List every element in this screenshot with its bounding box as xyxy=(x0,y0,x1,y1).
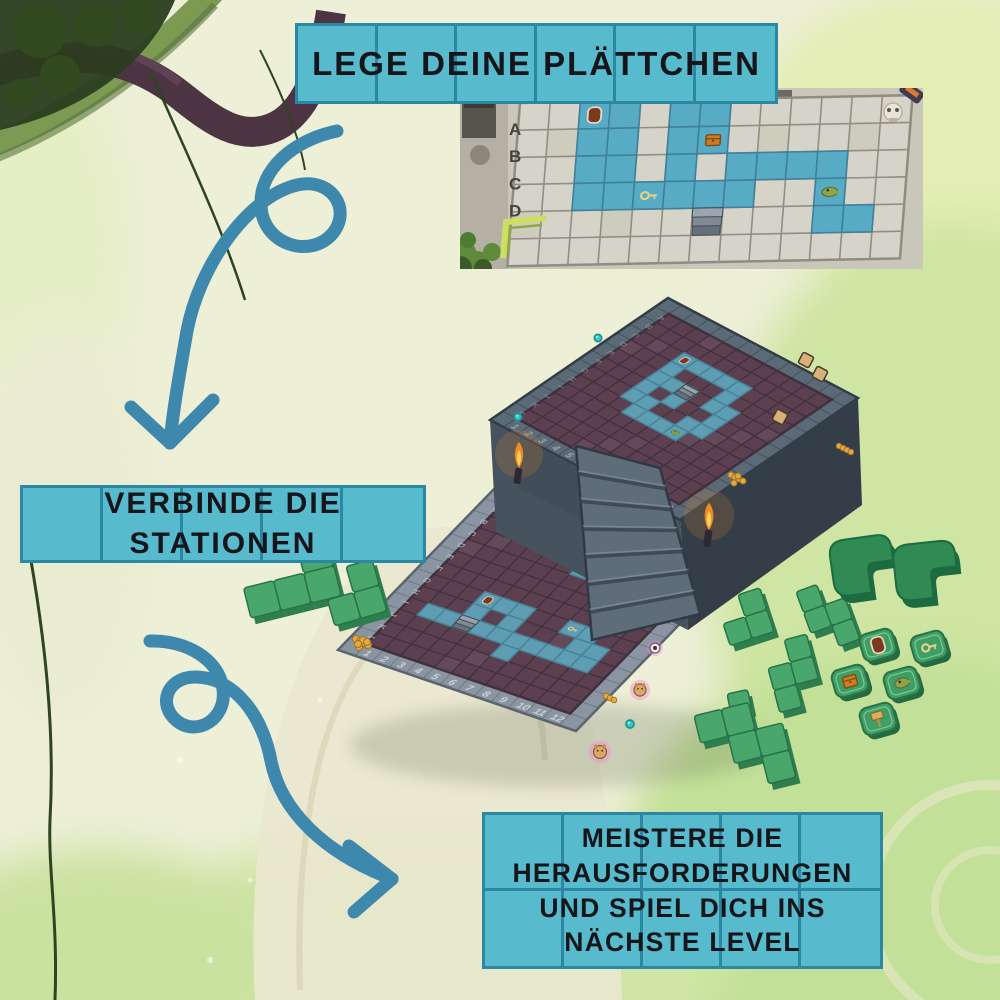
svg-text:B: B xyxy=(509,147,521,166)
board-photo: ABCD xyxy=(448,80,969,280)
gold-coins-icon xyxy=(364,639,371,646)
gold-coins-icon xyxy=(735,473,741,479)
banner-meistere-herausforderungen: MEISTERE DIE HERAUSFORDERUNGEN UND SPIEL… xyxy=(482,812,883,969)
gold-coins-icon xyxy=(740,478,746,484)
gold-coins-icon xyxy=(611,697,617,703)
teal-gem-icon xyxy=(626,720,634,728)
banner-bottom-line3: UND SPIEL DICH INS xyxy=(539,891,825,926)
gold-coins-icon xyxy=(731,480,737,486)
banner-bottom-line2: HERAUSFORDERUNGEN xyxy=(513,856,853,891)
teal-gem-icon xyxy=(514,413,521,420)
svg-text:A: A xyxy=(509,120,521,139)
banner-top-label: LEGE DEINE PLÄTTCHEN xyxy=(312,42,761,86)
skull-icon xyxy=(884,103,902,122)
svg-text:C: C xyxy=(509,174,521,193)
gold-coins-icon xyxy=(848,449,854,455)
gold-coins-icon xyxy=(355,641,362,648)
banner-bottom-line4: NÄCHSTE LEVEL xyxy=(564,925,800,960)
promo-image: ABCD 123456789101112ABCDEFGHIJKL xyxy=(0,0,1000,1000)
banner-mid-label: VERBINDE DIE STATIONEN xyxy=(23,484,423,563)
banner-bottom-line1: MEISTERE DIE xyxy=(582,821,783,856)
banner-verbinde-stationen: VERBINDE DIE STATIONEN xyxy=(20,485,426,563)
banner-lege-plaettchen: LEGE DEINE PLÄTTCHEN xyxy=(295,23,778,104)
teal-gem-icon xyxy=(594,334,601,341)
door-icon xyxy=(587,107,602,123)
